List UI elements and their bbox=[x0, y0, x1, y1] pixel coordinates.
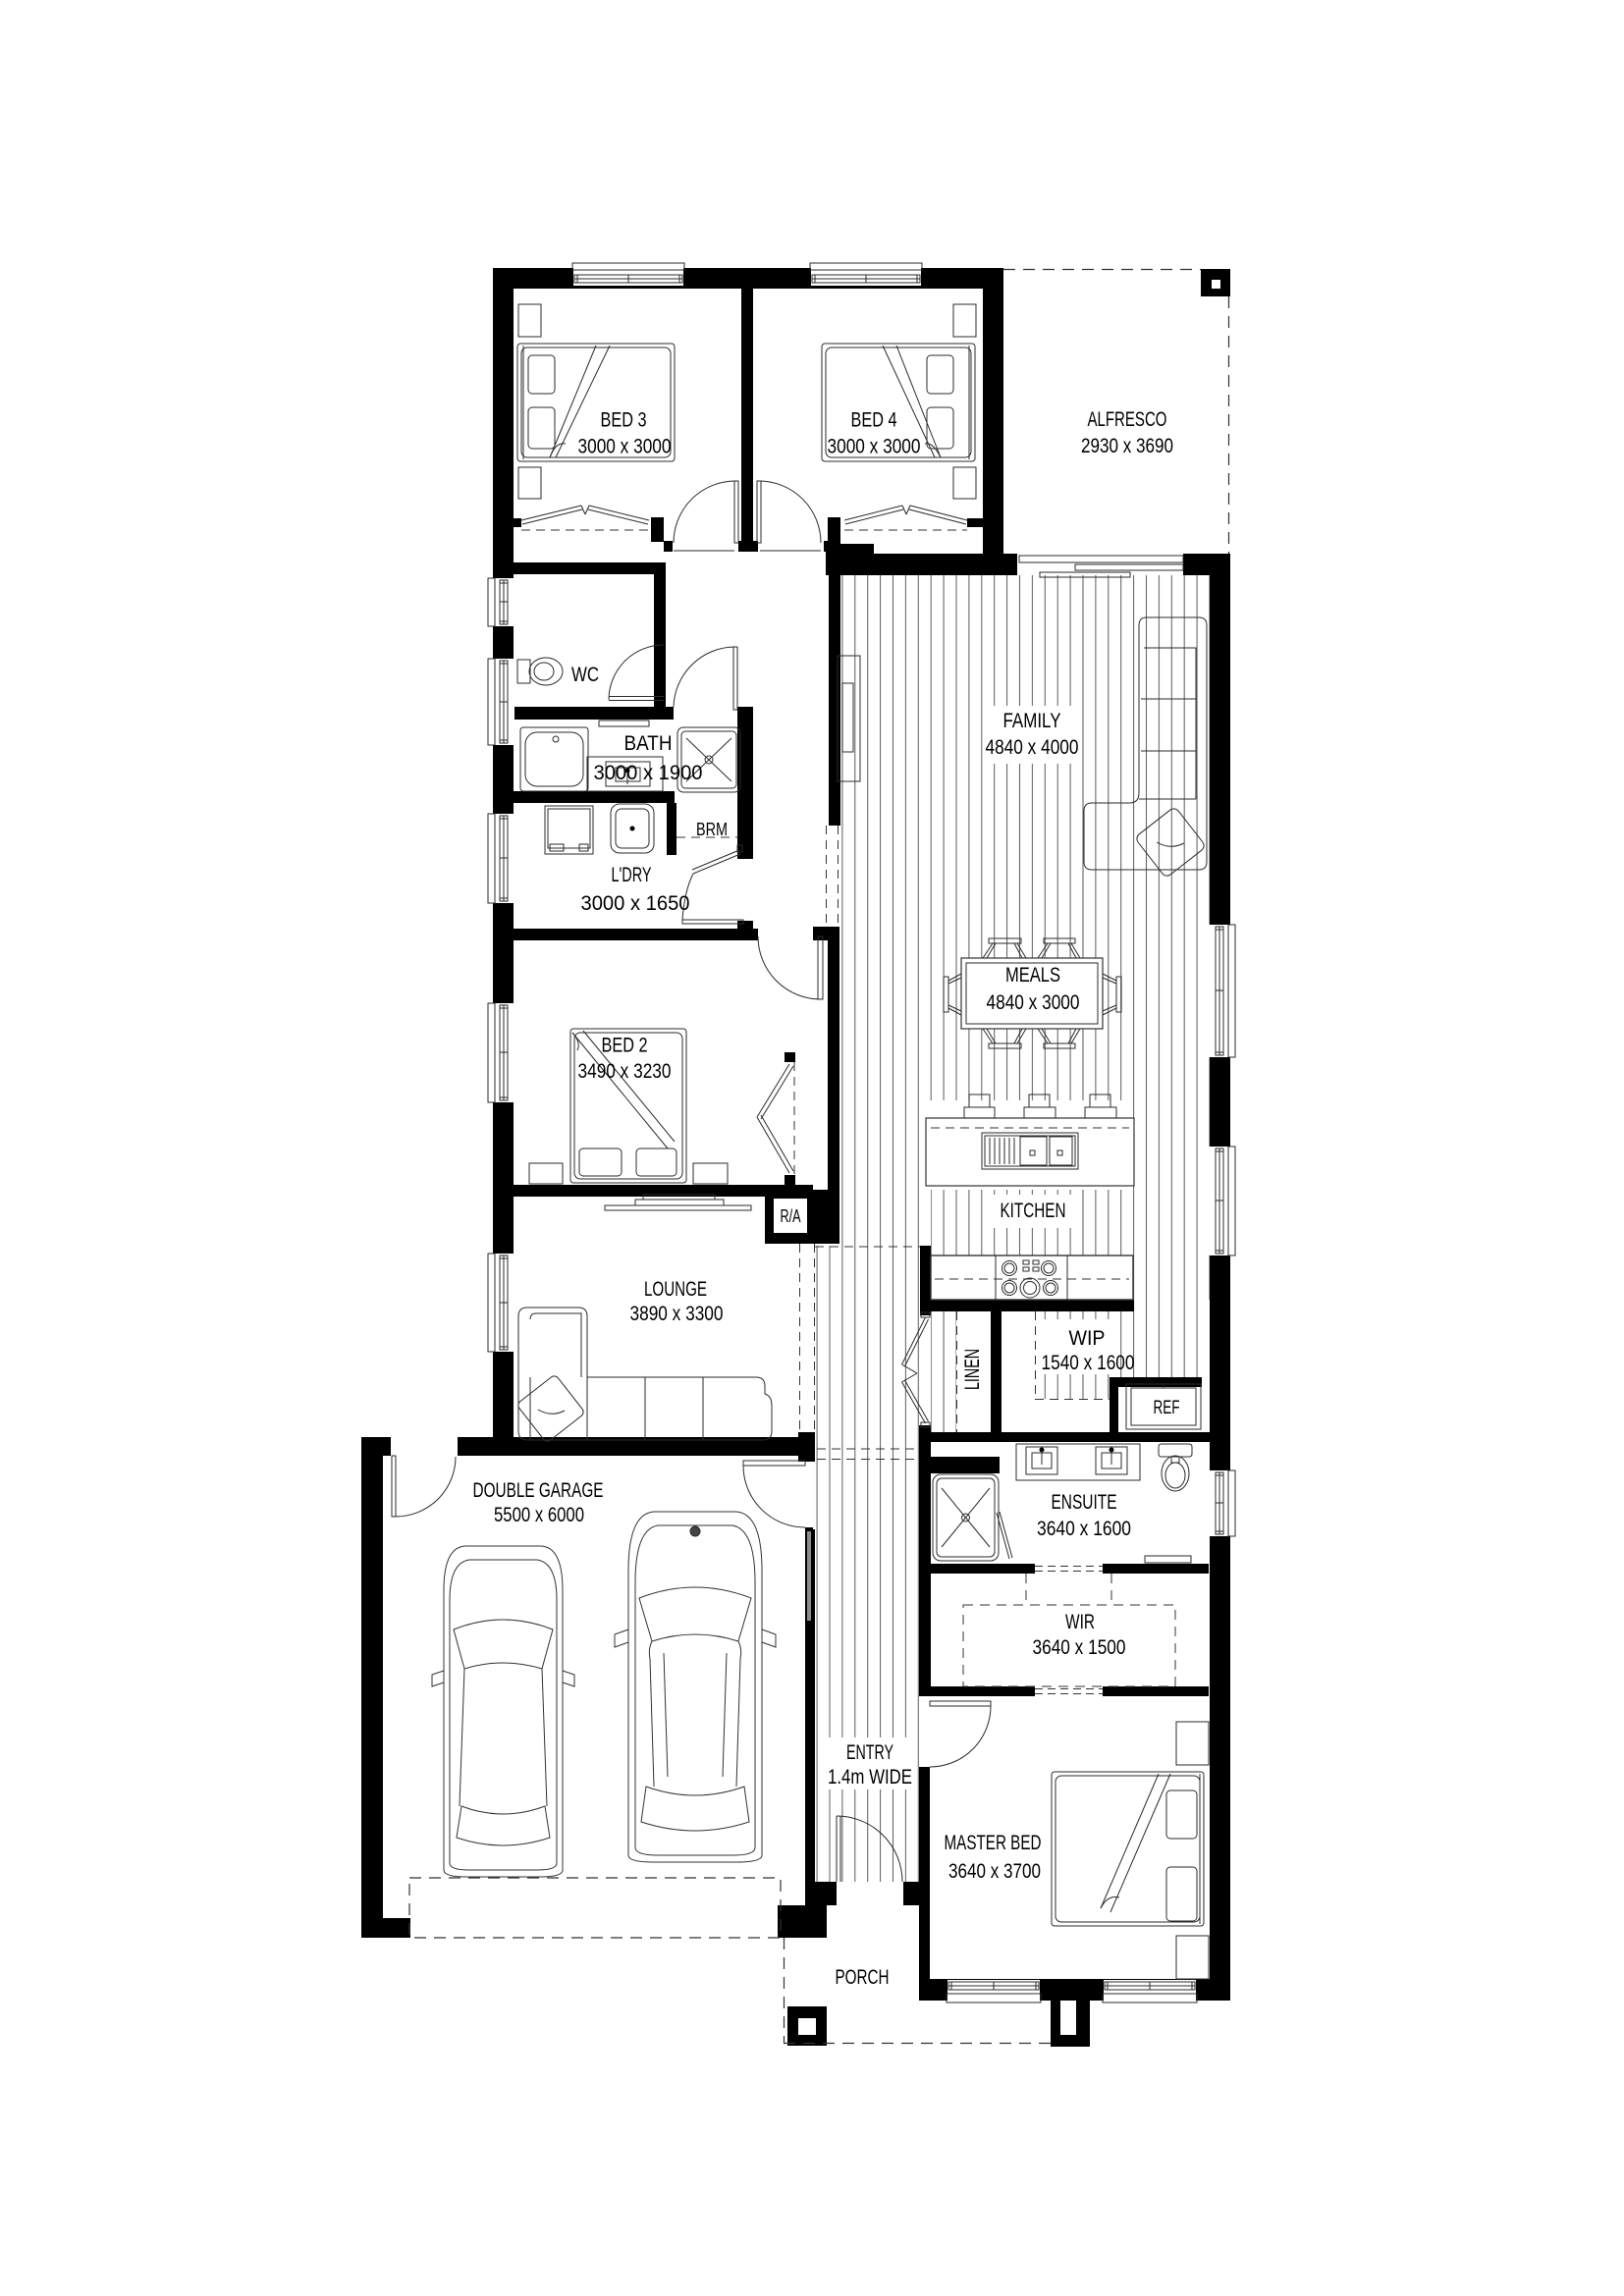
svg-text:ENSUITE: ENSUITE bbox=[1052, 1491, 1117, 1514]
svg-text:WIP: WIP bbox=[1069, 1327, 1106, 1350]
svg-text:4840 x 4000: 4840 x 4000 bbox=[986, 736, 1079, 759]
svg-text:L'DRY: L'DRY bbox=[612, 864, 652, 886]
svg-text:DOUBLE GARAGE: DOUBLE GARAGE bbox=[473, 1479, 604, 1502]
svg-text:2930 x 3690: 2930 x 3690 bbox=[1081, 435, 1173, 457]
svg-text:5500 x 6000: 5500 x 6000 bbox=[494, 1504, 584, 1526]
svg-text:1.4m WIDE: 1.4m WIDE bbox=[828, 1766, 912, 1789]
svg-text:WC: WC bbox=[571, 664, 599, 686]
svg-text:1540 x 1600: 1540 x 1600 bbox=[1042, 1352, 1135, 1374]
svg-text:3640 x 1500: 3640 x 1500 bbox=[1033, 1636, 1126, 1659]
svg-text:3000 x 1900: 3000 x 1900 bbox=[594, 762, 703, 784]
svg-text:3000 x 3000: 3000 x 3000 bbox=[578, 436, 672, 458]
svg-text:BED 3: BED 3 bbox=[601, 409, 647, 432]
svg-text:BRM: BRM bbox=[696, 820, 728, 839]
svg-text:WIR: WIR bbox=[1065, 1611, 1095, 1633]
svg-text:BED 2: BED 2 bbox=[602, 1035, 648, 1057]
svg-text:3000 x 1650: 3000 x 1650 bbox=[581, 892, 690, 915]
svg-text:BATH: BATH bbox=[624, 732, 673, 755]
svg-text:4840 x 3000: 4840 x 3000 bbox=[987, 991, 1080, 1014]
svg-text:3000 x 3000: 3000 x 3000 bbox=[828, 436, 921, 458]
svg-text:R/A: R/A bbox=[781, 1206, 801, 1226]
svg-text:PORCH: PORCH bbox=[836, 1966, 890, 1989]
svg-text:LINEN: LINEN bbox=[961, 1349, 984, 1390]
svg-text:3490 x 3230: 3490 x 3230 bbox=[578, 1060, 672, 1083]
svg-text:REF: REF bbox=[1154, 1398, 1180, 1418]
svg-text:ENTRY: ENTRY bbox=[846, 1741, 893, 1764]
svg-text:ALFRESCO: ALFRESCO bbox=[1088, 408, 1167, 431]
svg-text:MEALS: MEALS bbox=[1005, 964, 1060, 987]
svg-text:3640 x 1600: 3640 x 1600 bbox=[1037, 1518, 1131, 1540]
svg-text:KITCHEN: KITCHEN bbox=[1001, 1200, 1066, 1222]
svg-text:FAMILY: FAMILY bbox=[1003, 710, 1061, 732]
svg-text:MASTER BED: MASTER BED bbox=[945, 1832, 1042, 1854]
svg-text:LOUNGE: LOUNGE bbox=[644, 1278, 707, 1301]
svg-text:3890 x 3300: 3890 x 3300 bbox=[630, 1303, 724, 1325]
svg-text:3640 x 3700: 3640 x 3700 bbox=[948, 1860, 1041, 1883]
svg-text:BED 4: BED 4 bbox=[851, 409, 897, 432]
